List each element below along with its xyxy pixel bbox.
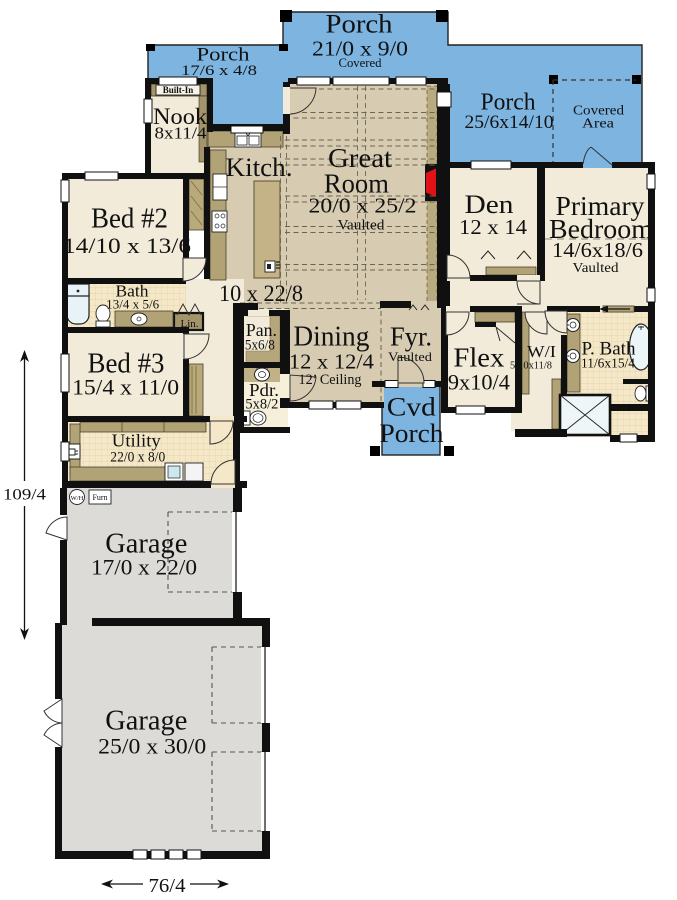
svg-text:10 x 22/8: 10 x 22/8 [219,281,303,306]
svg-text:8x11/4: 8x11/4 [155,124,208,143]
svg-text:Vaulted: Vaulted [388,349,433,364]
svg-text:9x10/4: 9x10/4 [448,370,510,395]
svg-text:Vaulted: Vaulted [573,261,619,276]
svg-text:Dining: Dining [293,322,369,353]
svg-text:W/I: W/I [527,342,556,361]
svg-text:Porch: Porch [326,10,393,39]
svg-text:Covered: Covered [339,55,382,70]
svg-text:5/10x11/8: 5/10x11/8 [510,361,552,372]
svg-text:5x6/8: 5x6/8 [245,338,275,354]
svg-text:Fyr.: Fyr. [390,322,432,352]
svg-text:5x8/2: 5x8/2 [245,397,278,413]
svg-text:Lin.: Lin. [180,318,198,330]
svg-text:12’ Ceiling: 12’ Ceiling [299,372,362,388]
svg-text:11/6x15/4: 11/6x15/4 [581,357,635,372]
svg-text:25/6x14/10: 25/6x14/10 [465,112,554,133]
svg-text:12 x 14: 12 x 14 [459,215,528,239]
svg-text:13/4 x 5/6: 13/4 x 5/6 [106,297,159,312]
svg-text:12 x 12/4: 12 x 12/4 [289,349,375,373]
svg-text:Flex: Flex [453,343,505,373]
svg-text:Built-In: Built-In [163,85,194,95]
svg-text:Bed #2: Bed #2 [91,204,168,235]
svg-text:Area: Area [582,117,615,132]
svg-text:15/4 x 11/0: 15/4 x 11/0 [72,375,179,400]
svg-text:109/4: 109/4 [3,487,46,504]
svg-text:Porch: Porch [380,419,444,448]
svg-text:22/0 x 8/0: 22/0 x 8/0 [110,450,165,466]
svg-text:20/0 x 25/2: 20/0 x 25/2 [309,194,417,218]
svg-text:W/H: W/H [71,495,84,502]
svg-text:14/6x18/6: 14/6x18/6 [552,238,643,262]
svg-text:Furn: Furn [92,493,107,502]
svg-text:14/10 x 13/6: 14/10 x 13/6 [63,233,191,258]
svg-text:Vaulted: Vaulted [338,218,386,234]
svg-text:17/0 x 22/0: 17/0 x 22/0 [91,555,197,580]
svg-text:25/0 x 30/0: 25/0 x 30/0 [98,734,206,759]
svg-text:Utility: Utility [112,431,161,451]
svg-text:Garage: Garage [105,706,187,737]
svg-text:76/4: 76/4 [149,875,186,897]
svg-text:Cvd: Cvd [387,393,436,422]
svg-text:Kitch.: Kitch. [226,153,293,182]
svg-text:17/6 x 4/8: 17/6 x 4/8 [181,63,257,79]
